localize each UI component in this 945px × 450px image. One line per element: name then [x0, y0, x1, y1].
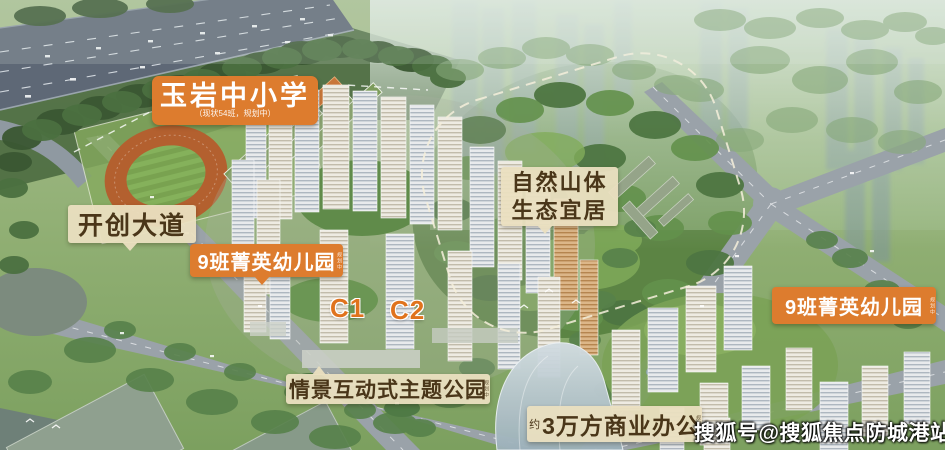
- label-kindergarten-left-note: 规划中: [336, 252, 341, 270]
- label-kindergarten-left: 9班菁英幼儿园 规划中: [190, 244, 343, 277]
- label-kindergarten-left-text: 9班菁英幼儿园: [197, 246, 335, 275]
- label-theme-park-text: 情景互动式主题公园: [289, 374, 487, 404]
- label-kindergarten-right-note: 规划中: [929, 297, 934, 315]
- label-theme-park: 情景互动式主题公园 规划中: [286, 374, 490, 404]
- label-theme-park-note: 规划中: [483, 380, 488, 398]
- label-commercial-text: 3万方商业办公: [542, 407, 700, 441]
- watermark-sohu: 搜狐号@搜狐焦点防城港站: [694, 417, 945, 447]
- label-school-subtitle: （现状54班，规划中）: [195, 110, 276, 118]
- label-kindergarten-right-text: 9班菁英幼儿园: [785, 291, 923, 320]
- label-school-title: 玉岩中小学: [160, 82, 310, 110]
- pointer-down-icon: [254, 276, 270, 285]
- pointer-up-icon: [312, 366, 326, 375]
- label-natural-hill-line1: 自然山体: [511, 169, 607, 197]
- pointer-down-icon: [537, 225, 553, 234]
- pointer-down-icon: [122, 242, 138, 251]
- label-kindergarten-right: 9班菁英幼儿园 规划中: [772, 287, 936, 324]
- label-road-kaichuang-avenue: 开创大道: [68, 205, 196, 243]
- label-school: 玉岩中小学 （现状54班，规划中）: [152, 76, 318, 125]
- marker-building-c2: C2: [390, 295, 425, 326]
- label-natural-hill-line2: 生态宜居: [511, 197, 607, 225]
- label-road-text: 开创大道: [78, 206, 186, 242]
- aerial-render-image: 玉岩中小学 （现状54班，规划中） 开创大道 9班菁英幼儿园 规划中 自然山体 …: [0, 0, 945, 450]
- label-commercial-prefix: 约: [529, 416, 541, 432]
- label-natural-hill: 自然山体 生态宜居: [501, 167, 618, 226]
- label-commercial-office: 约 3万方商业办公 规划中: [527, 406, 702, 442]
- marker-building-c1: C1: [330, 293, 365, 324]
